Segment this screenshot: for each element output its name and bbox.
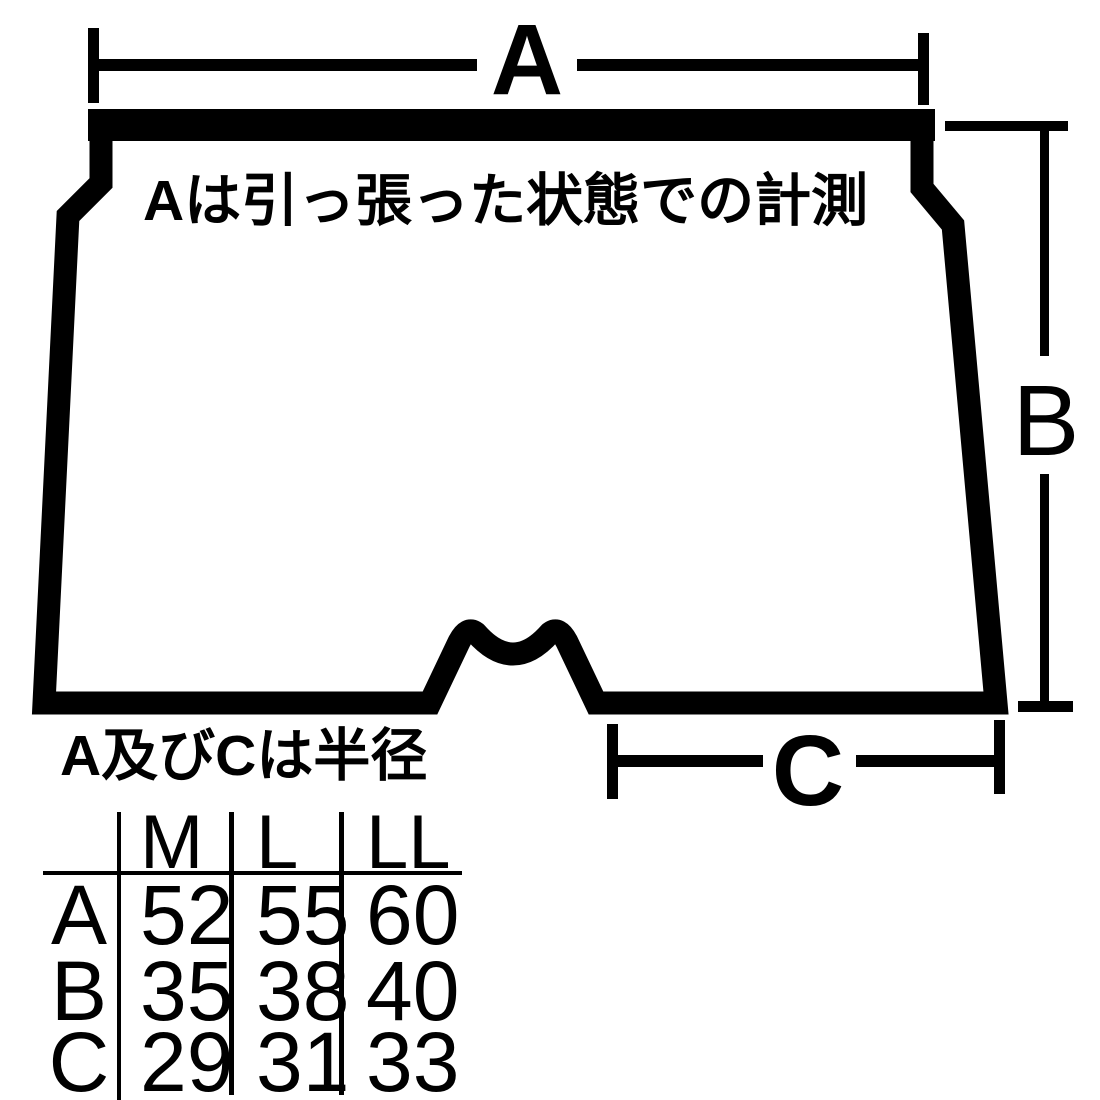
note-measure-stretched: Aは引っ張った状態での計測 [143,170,868,232]
size-table-col-header-m: M [118,812,231,873]
size-diagram-canvas: A B C Aは引っ張った状態での計測 A及びCは半径 M L LL A 52 … [0,0,1100,1100]
size-table-col-header-ll: LL [344,812,461,873]
dim-a-label: A [462,10,592,110]
dim-b-label: B [1000,371,1092,471]
dim-c-line-right-segment [856,755,1000,767]
size-table-col-header-l: L [234,812,340,873]
note-half-width: A及びCは半径 [60,725,427,787]
dim-b-cap-bottom [1018,701,1073,712]
dim-a-line-right-segment [577,59,923,71]
dim-a-line-left-segment [93,59,477,71]
dim-b-cap-top [945,121,1068,131]
size-table-cell-c-m: 29 [118,1025,231,1100]
dim-b-line-lower-segment [1040,474,1049,707]
dim-c-label: C [762,721,854,821]
dim-b-line-upper-segment [1040,126,1049,356]
size-table-cell-c-l: 31 [234,1025,340,1100]
size-table-cell-c-ll: 33 [344,1025,461,1100]
dim-c-line-left-segment [612,755,763,767]
size-table-row-label-c: C [40,1025,118,1100]
